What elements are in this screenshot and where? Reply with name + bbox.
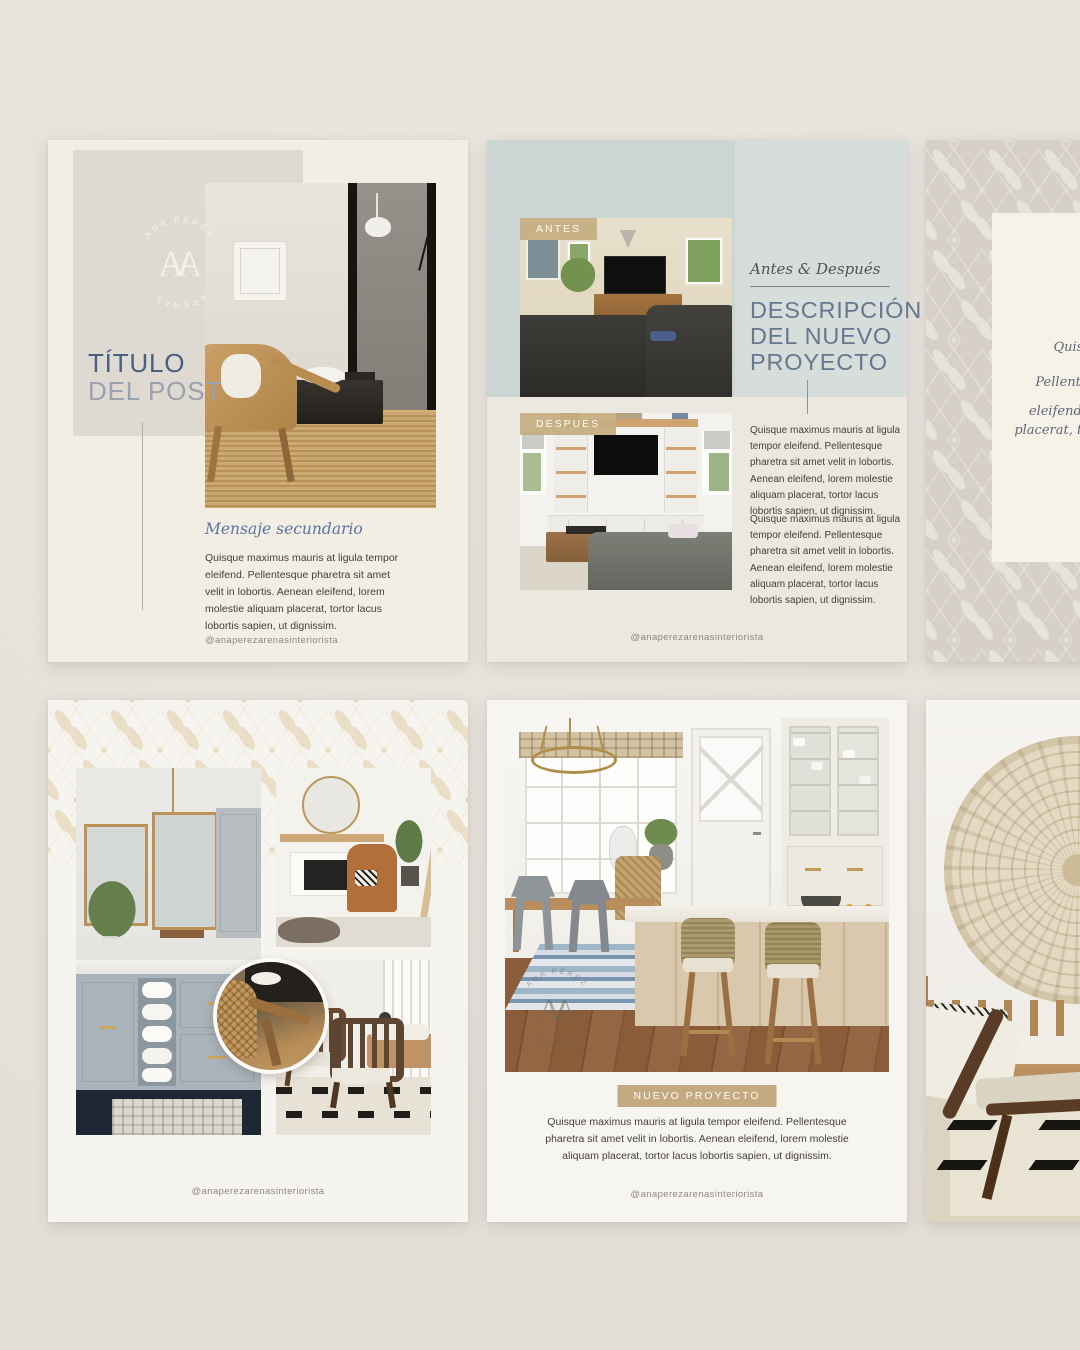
fiddle-leaf-plant bbox=[391, 818, 427, 870]
logo-arc-top: ANA PÉREZ bbox=[525, 967, 590, 989]
quote-line-2: Pellentesque pharetra sit amet bbox=[1006, 374, 1080, 393]
vertical-divider bbox=[142, 422, 143, 610]
pillow bbox=[668, 524, 698, 538]
logo-monogram: A A bbox=[159, 243, 202, 283]
photo-circle-inset bbox=[213, 958, 329, 1074]
photo-daybed-room bbox=[926, 700, 1080, 1222]
chair-cushion bbox=[221, 354, 261, 398]
woven-chair bbox=[213, 980, 257, 1058]
books bbox=[345, 372, 375, 380]
instagram-handle: @anaperezarenasinteriorista bbox=[205, 635, 338, 646]
barstool bbox=[677, 918, 739, 1058]
instagram-handle: @anaperezarenasinteriorista bbox=[487, 1189, 907, 1200]
svg-text:A: A bbox=[175, 243, 201, 283]
farm-door bbox=[691, 728, 771, 920]
dark-sectional-arm bbox=[646, 305, 732, 397]
white-bowl bbox=[251, 972, 281, 985]
photo-after bbox=[520, 413, 732, 590]
pendant-cord bbox=[172, 768, 174, 814]
instagram-handle: @anaperezarenasinteriorista bbox=[487, 632, 907, 643]
logo-arc-bottom: ARENAS bbox=[533, 1034, 582, 1049]
round-ottoman bbox=[278, 917, 340, 943]
title-connector-line bbox=[807, 380, 808, 414]
brass-chandelier bbox=[523, 718, 619, 774]
post-title-line1: TÍTULO bbox=[88, 348, 185, 379]
logo-arc-bottom: ARENAS bbox=[152, 292, 208, 309]
patterned-rug bbox=[112, 1099, 242, 1135]
quote-text: Quisque maximus mauris Pellentesque phar… bbox=[1006, 339, 1080, 440]
wood-armchair bbox=[926, 1030, 1080, 1210]
brand-logo-badge: ANA PÉREZ ARENAS A A bbox=[132, 214, 228, 310]
hutch-cabinet bbox=[781, 718, 889, 918]
instagram-handle: @anaperezarenasinteriorista bbox=[48, 1186, 468, 1197]
post-title-line2: DEL POST bbox=[88, 376, 222, 407]
tall-cabinet bbox=[216, 808, 261, 938]
svg-text:A: A bbox=[553, 992, 576, 1027]
card-quote-pattern: Quisque maximus mauris Pellentesque phar… bbox=[926, 140, 1080, 662]
quote-line-1: Quisque maximus mauris bbox=[1006, 339, 1080, 358]
card-nuevo-proyecto: ANA PÉREZ ARENAS A A NUEVO PROYECTO Quis… bbox=[487, 700, 907, 1222]
logo-monogram: A A bbox=[538, 992, 576, 1027]
brand-watermark-logo: ANA PÉREZ ARENAS A A bbox=[515, 966, 599, 1050]
label-nuevo-proyecto: NUEVO PROYECTO bbox=[618, 1085, 777, 1107]
logo-arc-top: ANA PÉREZ bbox=[143, 215, 217, 240]
towel-cubby bbox=[138, 978, 176, 1086]
round-mirror bbox=[302, 776, 360, 834]
label-antes: ANTES bbox=[520, 218, 597, 240]
window bbox=[684, 236, 724, 286]
blue-pillow bbox=[650, 331, 676, 341]
post-body: Quisque maximus mauris at ligula tempor … bbox=[205, 550, 411, 635]
card-antes-despues: ANTES Antes & Después DESCRIPCIÓN DEL NU… bbox=[487, 140, 907, 662]
gray-sectional bbox=[588, 532, 732, 590]
chair-leg bbox=[278, 428, 294, 482]
card-titulo-del-post: ANA PÉREZ ARENAS A A TÍTULO DEL POST Men… bbox=[48, 140, 468, 662]
template-collage-page: ANA PÉREZ ARENAS A A TÍTULO DEL POST Men… bbox=[0, 0, 1080, 1350]
project-title-line2: DEL NUEVO bbox=[750, 324, 892, 350]
glass-vase bbox=[102, 936, 120, 962]
decor-object bbox=[616, 413, 642, 419]
photo-living-bedroom bbox=[205, 183, 436, 508]
tv-screen bbox=[594, 435, 658, 475]
project-paragraph-1: Quisque maximus mauris at ligula tempor … bbox=[750, 423, 902, 520]
quote-panel: Quisque maximus mauris Pellentesque phar… bbox=[992, 213, 1080, 562]
photo-bathroom bbox=[76, 768, 261, 1135]
card-collage: @anaperezarenasinteriorista bbox=[48, 700, 468, 1222]
project-paragraph-2: Quisque maximus mauris at ligula tempor … bbox=[750, 512, 902, 609]
eyebrow-antes-despues: Antes & Después bbox=[750, 260, 880, 278]
chair-leg bbox=[207, 426, 222, 482]
eyebrow-rule bbox=[750, 286, 890, 287]
shelf-column bbox=[554, 427, 588, 513]
pendant-lamp bbox=[365, 217, 391, 237]
shelf-column bbox=[664, 427, 698, 513]
decor-object bbox=[672, 413, 688, 419]
photo-fireplace-room bbox=[276, 768, 431, 947]
label-despues: DESPUÉS bbox=[520, 413, 616, 435]
window bbox=[520, 431, 546, 495]
wood-mantel bbox=[280, 834, 384, 842]
photo-before bbox=[520, 218, 732, 397]
framed-art bbox=[233, 241, 287, 301]
framed-art bbox=[526, 238, 560, 280]
dark-sectional bbox=[520, 315, 664, 397]
wood-armchair bbox=[205, 344, 315, 494]
brass-mirror bbox=[152, 812, 218, 930]
window bbox=[702, 431, 732, 495]
project-title-line1: DESCRIPCIÓN bbox=[750, 298, 922, 324]
planter bbox=[401, 866, 419, 886]
barstool bbox=[761, 922, 825, 1066]
tv-screen bbox=[604, 256, 666, 294]
pendant-cord bbox=[376, 193, 378, 219]
palm-plant bbox=[560, 258, 596, 300]
card-full-photo bbox=[926, 700, 1080, 1222]
project-body: Quisque maximus mauris at ligula tempor … bbox=[529, 1114, 865, 1165]
wood-chair-front bbox=[330, 1018, 396, 1110]
quote-line-3: eleifend, lorem molestie aliquam placera… bbox=[1006, 403, 1080, 441]
project-title-line3: PROYECTO bbox=[750, 350, 888, 376]
secondary-message: Mensaje secundario bbox=[205, 520, 363, 538]
leather-wingback-chair bbox=[347, 844, 397, 912]
photo-kitchen: ANA PÉREZ ARENAS A A bbox=[505, 718, 889, 1072]
